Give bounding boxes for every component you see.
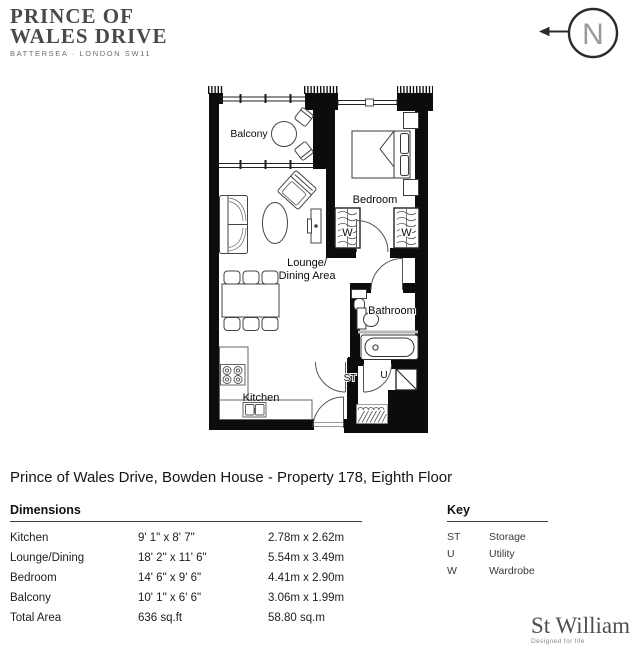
metric-size: 5.54m x 3.49m	[268, 552, 362, 564]
metric-size: 58.80 sq.m	[268, 612, 362, 624]
wardrobe-label-left: W	[342, 227, 353, 239]
room-label-bedroom: Bedroom	[353, 194, 398, 206]
room-name: Kitchen	[10, 532, 138, 544]
imperial-size: 14' 6" x 9' 6"	[138, 572, 268, 584]
key-rows: ST Storage U Utility W Wardrobe	[447, 528, 548, 579]
entrance-threshold	[314, 420, 344, 430]
key-item: U Utility	[447, 545, 548, 562]
room-name: Balcony	[10, 592, 138, 604]
kitchen-sink	[243, 403, 266, 418]
brand-tagline: Designed for life	[531, 638, 630, 645]
property-title: Prince of Wales Drive, Bowden House - Pr…	[10, 469, 452, 486]
imperial-size: 10' 1" x 6' 6"	[138, 592, 268, 604]
key-label: Storage	[489, 531, 548, 543]
key-label: Wardrobe	[489, 565, 548, 577]
key-code: ST	[447, 531, 489, 543]
party-wall-hatching	[208, 86, 433, 94]
key-legend: Key ST Storage U Utility W Wardrobe	[447, 503, 548, 579]
brand-name: St William	[531, 615, 630, 637]
metric-size: 4.41m x 2.90m	[268, 572, 362, 584]
dimensions-rows: Kitchen 9' 1" x 8' 7" 2.78m x 2.62m Loun…	[10, 528, 362, 628]
shower-screen	[358, 331, 418, 334]
balcony-table-and-chairs	[272, 107, 314, 161]
metric-size: 3.06m x 1.99m	[268, 592, 362, 604]
developer-brand: St William Designed for life	[531, 615, 630, 645]
table-row: Kitchen 9' 1" x 8' 7" 2.78m x 2.62m	[10, 528, 362, 548]
window-centre-mark	[366, 99, 374, 106]
hob	[221, 365, 246, 386]
key-label: Utility	[489, 548, 548, 560]
sofa	[220, 196, 248, 254]
dimensions-table: Dimensions Kitchen 9' 1" x 8' 7" 2.78m x…	[10, 503, 362, 628]
key-code: W	[447, 565, 489, 577]
logo-line-1: PRINCE OF	[10, 6, 167, 26]
table-row: Bedroom 14' 6" x 9' 6" 4.41m x 2.90m	[10, 568, 362, 588]
north-letter: N	[582, 18, 604, 51]
table-row: Lounge/Dining 18' 2" x 11' 6" 5.54m x 3.…	[10, 548, 362, 568]
storage-hatch	[357, 405, 388, 424]
dining-table-and-chairs	[222, 271, 279, 331]
bathtub	[361, 335, 418, 360]
room-label-utility: U	[380, 370, 387, 381]
metric-size: 2.78m x 2.62m	[268, 532, 362, 544]
coffee-table	[263, 203, 288, 244]
armchair	[277, 170, 317, 210]
table-row: Balcony 10' 1" x 6' 6" 3.06m x 1.99m	[10, 588, 362, 608]
room-label-storage: ST	[344, 373, 357, 384]
room-label-kitchen: Kitchen	[243, 392, 280, 404]
room-label-bathroom: Bathroom	[368, 305, 416, 317]
utility-appliance	[396, 369, 417, 390]
table-row: Total Area 636 sq.ft 58.80 sq.m	[10, 608, 362, 628]
room-label-lounge-line2: Dining Area	[279, 270, 337, 282]
floorplan-page: { "header": { "logo_line1": "PRINCE OF",…	[0, 0, 634, 659]
room-name: Total Area	[10, 612, 138, 624]
room-name: Bedroom	[10, 572, 138, 584]
dimensions-heading: Dimensions	[10, 503, 362, 522]
wardrobe-label-right: W	[401, 227, 412, 239]
key-code: U	[447, 548, 489, 560]
development-logo: PRINCE OF WALES DRIVE BATTERSEA · LONDON…	[10, 6, 167, 58]
double-bed	[352, 131, 410, 178]
imperial-size: 18' 2" x 11' 6"	[138, 552, 268, 564]
key-item: ST Storage	[447, 528, 548, 545]
room-label-balcony: Balcony	[230, 128, 268, 140]
key-item: W Wardrobe	[447, 562, 548, 579]
room-name: Lounge/Dining	[10, 552, 138, 564]
logo-line-2: WALES DRIVE	[10, 26, 167, 46]
room-label-lounge-line1: Lounge/	[287, 257, 328, 269]
key-heading: Key	[447, 503, 548, 522]
logo-subtitle: BATTERSEA · LONDON SW11	[10, 49, 167, 58]
north-arrow-icon: N	[539, 9, 617, 57]
imperial-size: 636 sq.ft	[138, 612, 268, 624]
tv-unit	[308, 209, 322, 243]
imperial-size: 9' 1" x 8' 7"	[138, 532, 268, 544]
